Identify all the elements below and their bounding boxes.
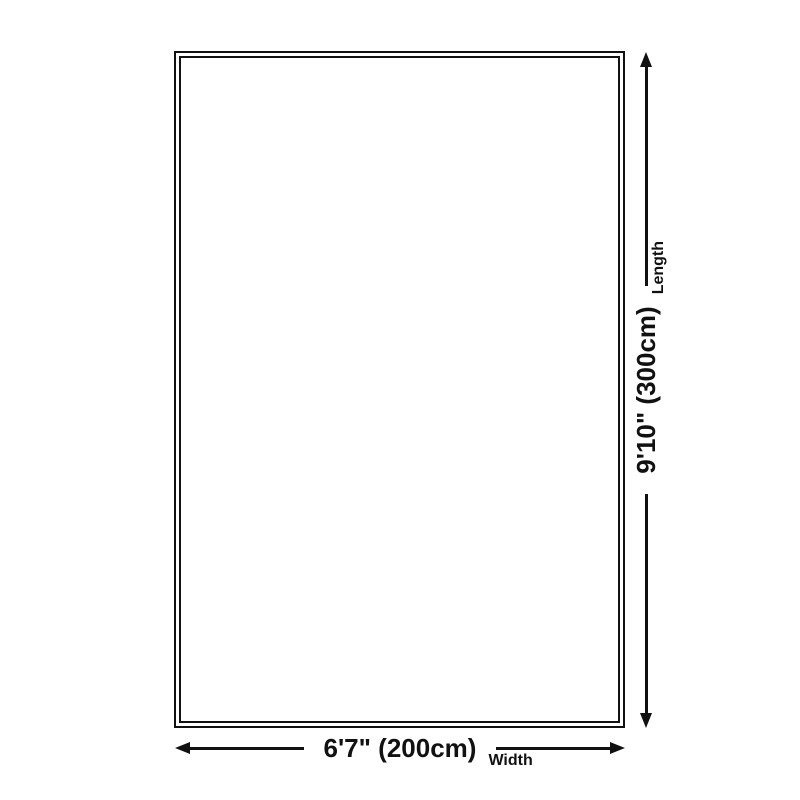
length-axis-label: Length	[651, 241, 667, 294]
width-dimension-line-right: Width	[496, 747, 610, 750]
width-value: 6'7" (200cm)	[324, 733, 477, 764]
length-value: 9'10" (300cm)	[631, 306, 662, 473]
width-dimension-line-left	[190, 747, 304, 750]
arrow-right-icon	[610, 742, 625, 754]
dimension-diagram: 6'7" (200cm) Width 9'10" (300cm) Length	[0, 0, 800, 800]
length-dimension-line-lower	[645, 494, 648, 713]
arrow-down-icon	[640, 713, 652, 728]
arrow-up-icon	[640, 52, 652, 67]
rug-outline-inner	[179, 56, 620, 723]
length-dimension-annotation: 9'10" (300cm) Length	[631, 52, 661, 728]
width-dimension-annotation: 6'7" (200cm) Width	[175, 733, 625, 763]
width-axis-label: Width	[488, 753, 532, 769]
arrow-left-icon	[175, 742, 190, 754]
rug-outline	[174, 51, 625, 728]
length-dimension-line-upper: Length	[645, 67, 648, 286]
